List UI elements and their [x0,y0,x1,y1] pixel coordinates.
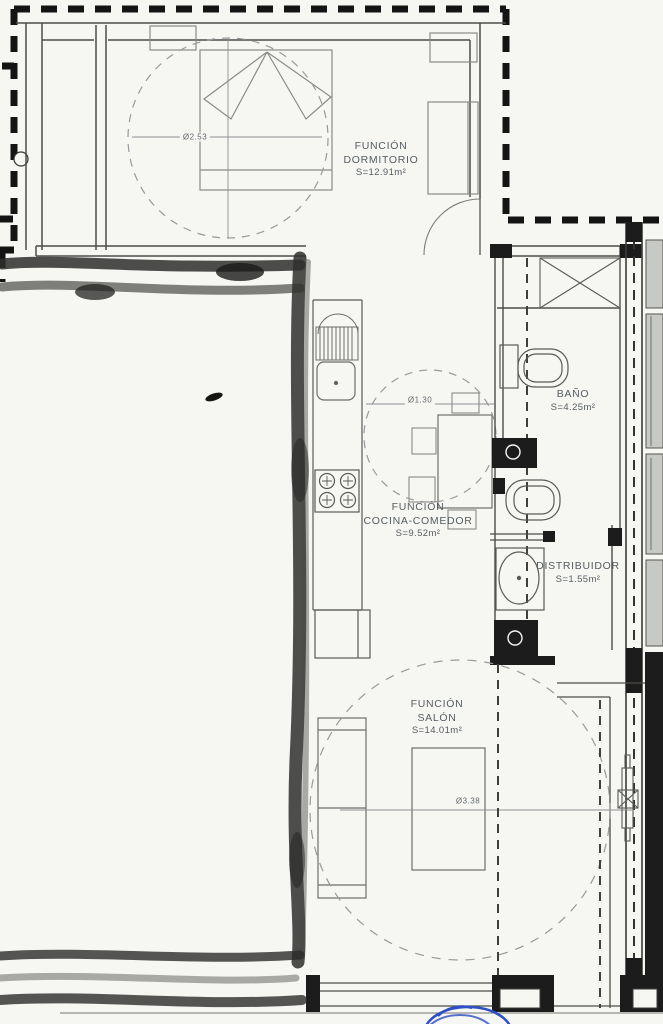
clearance-circle-cocina [364,370,496,502]
scan-marker-bottom [0,954,302,1002]
wall-corner-block [645,655,663,695]
appliance-box-bottom [494,620,538,658]
plan-linework [0,0,663,1024]
scan-marker-horizontal [2,262,300,300]
fridge [315,610,370,658]
room-name: FUNCIÓN [411,698,464,712]
room-label-dormitorio: FUNCIÓN DORMITORIO S=12.91m² [343,140,418,180]
bed [200,50,332,190]
appliance-box-top [492,438,537,468]
kitchen-sink [317,362,355,400]
room-name: DORMITORIO [343,154,418,168]
room-area: S=9.52m² [364,528,473,540]
wall-corner-block [620,244,642,258]
dimension-line-dormitorio [132,38,322,238]
room-name: COCINA-COMEDOR [364,515,473,529]
room-area: S=12.91m² [343,167,418,179]
door-arc-dormitorio-icon [424,199,480,255]
room-name: BAÑO [551,388,596,402]
dining-table [438,415,492,508]
dimension-label-dormitorio: Ø2.53 [180,133,210,142]
shower-tray [540,258,620,308]
room-name: FUNCIÓN [364,501,473,515]
room-label-salon: FUNCIÓN SALÓN S=14.01m² [411,698,464,738]
right-wall [626,222,642,1012]
room-area: S=1.55m² [536,574,620,586]
wall-stub [490,531,555,542]
distribuidor-bottom-wall [490,656,555,665]
scan-smudge [204,391,223,403]
window-strip [646,240,663,646]
room-area: S=4.25m² [551,402,596,414]
room-area: S=14.01m² [411,725,464,737]
scan-marker-vertical [289,258,309,962]
pillows [204,52,331,119]
room-name: DISTRIBUIDOR [536,560,620,574]
dish-rack [316,314,358,360]
right-wall-solid [645,652,663,1012]
floor-plan-scan: FUNCIÓN DORMITORIO S=12.91m² FUNCIÓN COC… [0,0,663,1024]
room-label-bano: BAÑO S=4.25m² [551,388,596,414]
salon-table [412,748,485,870]
room-name: FUNCIÓN [343,140,418,154]
room-label-distribuidor: DISTRIBUIDOR S=1.55m² [536,560,620,586]
nightstand-left [150,26,196,50]
stove [315,470,359,512]
dimension-label-cocina: Ø1.30 [405,396,435,405]
salon-dashed-lines [498,664,600,1008]
sofa [318,718,366,898]
dormitorio-walls [16,23,506,256]
wall-block [608,528,622,546]
dimension-label-salon: Ø3.38 [453,797,483,806]
wall-corner-block [490,244,512,258]
toilet [500,345,568,388]
room-name: SALÓN [411,712,464,726]
room-label-cocina: FUNCIÓN COCINA-COMEDOR S=9.52m² [364,501,473,541]
